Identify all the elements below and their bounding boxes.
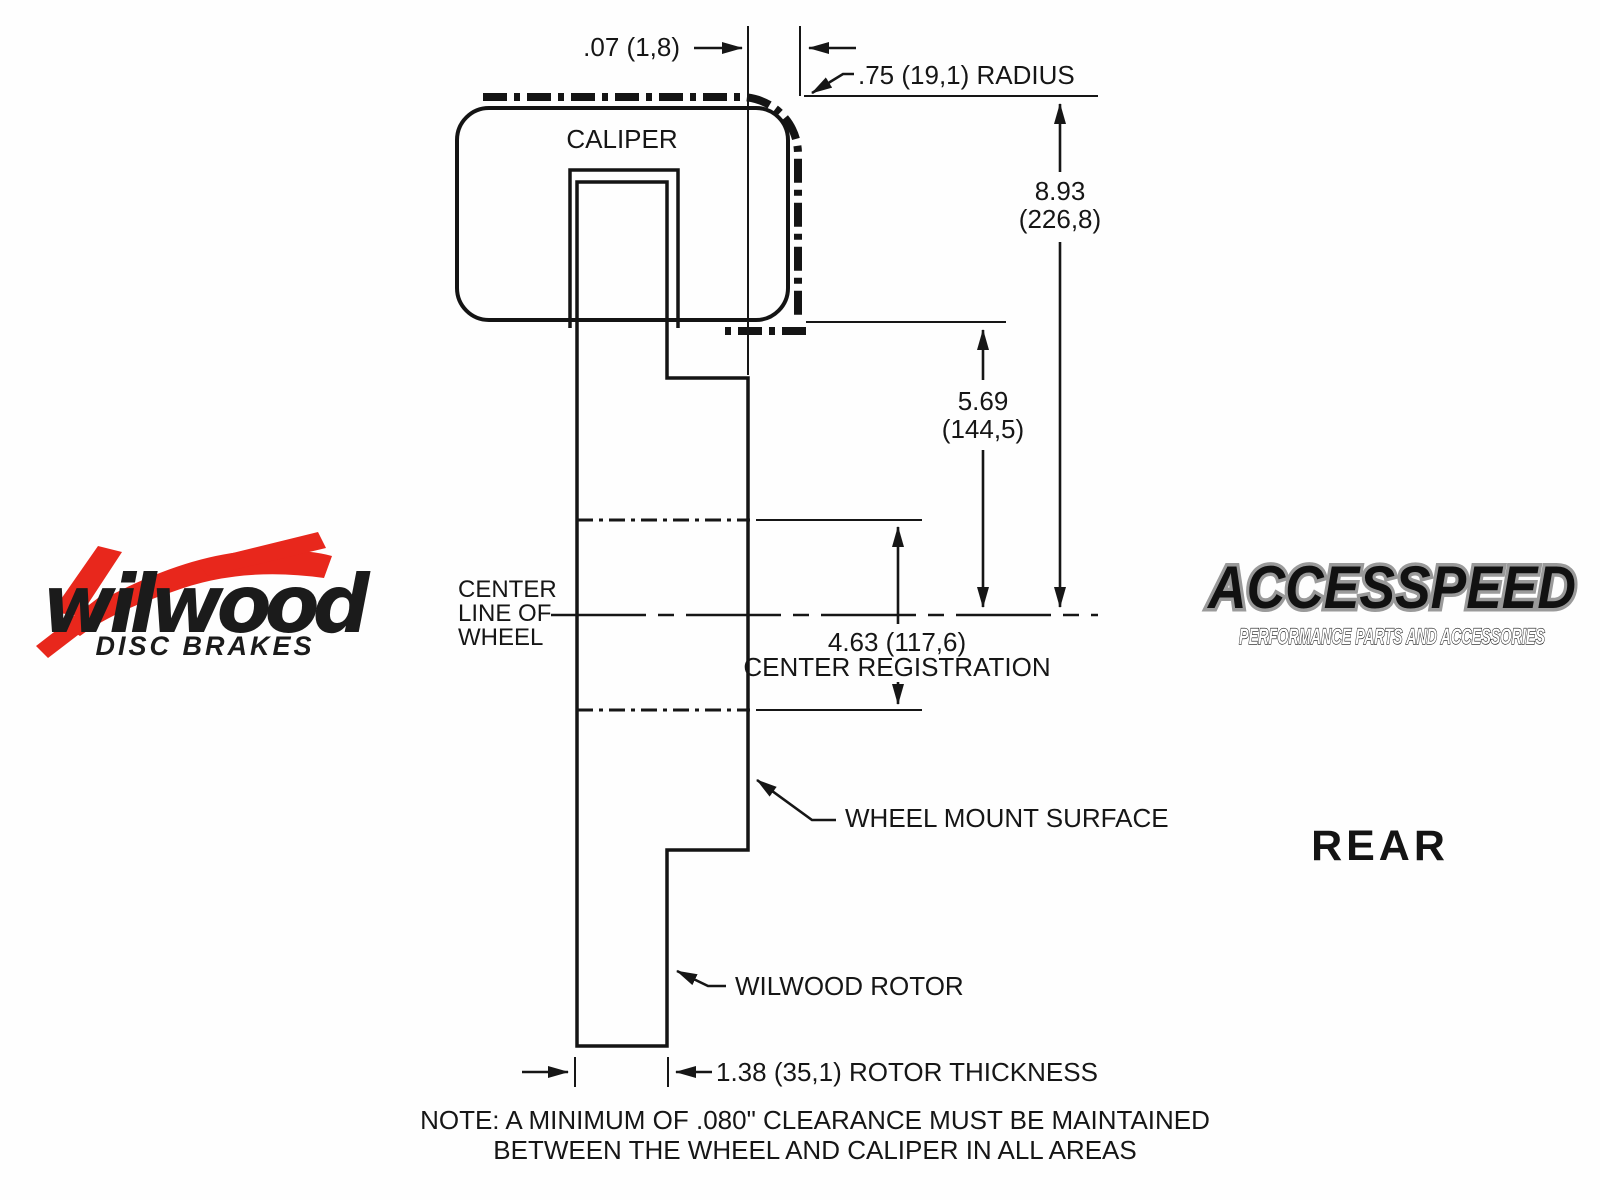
reference-lines — [575, 26, 1098, 1087]
centerline-label-line2: LINE OF — [458, 600, 551, 627]
diagram-canvas: CALIPER .07 (1,8) .75 (19,1) RADIUS 8.93… — [0, 0, 1600, 1200]
centerline-label-line1: CENTER — [458, 576, 557, 603]
overall-height-mm: (226,8) — [1019, 204, 1101, 234]
rotor-label: WILWOOD ROTOR — [735, 971, 964, 1001]
annotations: CALIPER .07 (1,8) .75 (19,1) RADIUS 8.93… — [420, 32, 1210, 1165]
wheel-mount-label: WHEEL MOUNT SURFACE — [845, 803, 1169, 833]
wilwood-logo: wilwood DISC BRAKES — [36, 532, 371, 661]
wheel-mount-leader-arrow — [757, 780, 836, 820]
note-line2: BETWEEN THE WHEEL AND CALIPER IN ALL ARE… — [493, 1135, 1136, 1165]
accesspeed-tagline: PERFORMANCE PARTS AND ACCESSORIES — [1239, 624, 1545, 649]
accesspeed-wordmark: ACCESSPEED — [1206, 554, 1576, 621]
radius-label: .75 (19,1) RADIUS — [858, 60, 1075, 90]
wilwood-tagline: DISC BRAKES — [95, 631, 314, 661]
registration-label: CENTER REGISTRATION — [743, 652, 1050, 682]
overall-height-inches: 8.93 — [1035, 176, 1086, 206]
position-label: REAR — [1311, 822, 1449, 870]
brake-dimension-drawing: CALIPER .07 (1,8) .75 (19,1) RADIUS 8.93… — [0, 0, 1600, 1200]
section-view — [457, 97, 1098, 1046]
caliper-height-inches: 5.69 — [958, 386, 1009, 416]
caliper-rotor-slot — [570, 170, 678, 328]
dimension-arrows — [522, 48, 1060, 1072]
caliper-label: CALIPER — [566, 124, 677, 154]
rotor-thickness-text: 1.38 (35,1) ROTOR THICKNESS — [716, 1057, 1098, 1087]
offset-dimension-text: .07 (1,8) — [583, 32, 680, 62]
centerline-label-line3: WHEEL — [458, 624, 543, 651]
note-line1: NOTE: A MINIMUM OF .080" CLEARANCE MUST … — [420, 1105, 1210, 1135]
rotor-leader-arrow — [677, 971, 726, 986]
accesspeed-logo: ACCESSPEED PERFORMANCE PARTS AND ACCESSO… — [1206, 554, 1576, 649]
radius-leader-arrow — [812, 74, 854, 93]
caliper-height-mm: (144,5) — [942, 414, 1024, 444]
